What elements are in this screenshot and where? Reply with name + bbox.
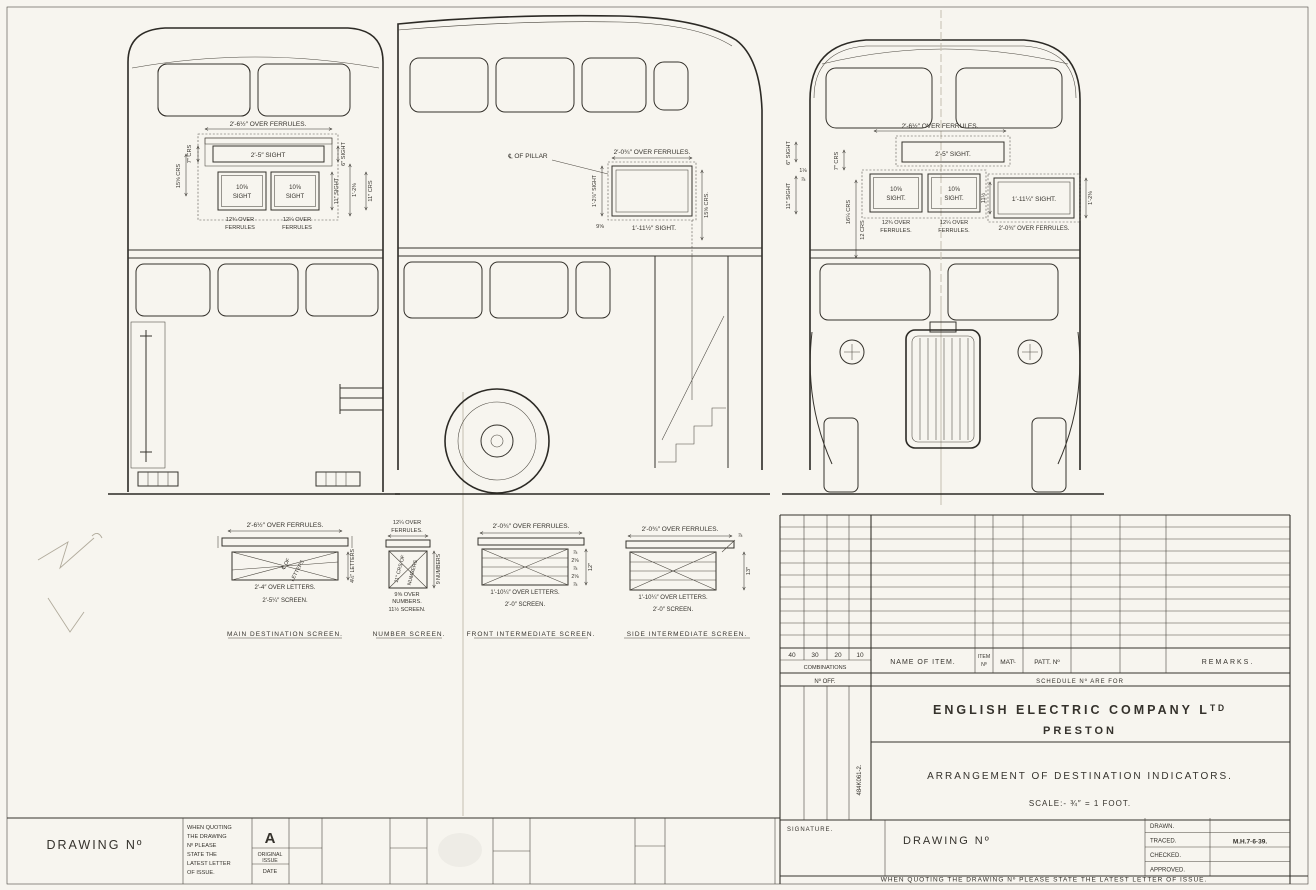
combo-col: 10	[856, 652, 864, 659]
side-lower-window	[404, 262, 482, 318]
drawing-scale: SCALE:- ¾″ = 1 FOOT.	[1029, 799, 1131, 808]
dim-label: 15⅝ CRS	[176, 164, 182, 189]
issue-note-line: OF ISSUE.	[187, 870, 215, 876]
drawing-no-left: DRAWING Nº	[46, 838, 143, 852]
dim-label: 15⅝ CRS.	[704, 192, 710, 218]
dim-label: 2⅝	[571, 558, 579, 564]
centerline-label: ℄ OF PILLAR	[507, 153, 548, 160]
dim-label: ⅞	[738, 533, 743, 539]
title-block: ENGLISH ELECTRIC COMPANY Lᵀᴰ PRESTON ARR…	[927, 703, 1233, 808]
front-lower-windscreen	[948, 264, 1058, 320]
combo-col: 40	[788, 652, 796, 659]
dim-label: 1′-10¼″ OVER LETTERS.	[490, 590, 560, 596]
dim-label: 6″ SIGHT	[786, 141, 792, 165]
bottom-strip: DRAWING Nº WHEN QUOTING THE DRAWING Nº P…	[7, 818, 1308, 884]
rear-lower-window	[218, 264, 298, 316]
item-no-header: Nº	[981, 662, 987, 668]
screen-details: 2′-6½″ OVER FERRULES. ℄ OF LETTERS 4½″ L…	[218, 520, 752, 638]
dim-label: FERRULES.	[391, 528, 423, 534]
dim-label: 1′-2⅜	[352, 183, 358, 197]
traced-label: TRACED.	[1150, 839, 1177, 845]
dim-label: 12 CRS	[860, 220, 866, 240]
dim-label: 12¾ OVER	[882, 220, 910, 226]
remarks-header: REMARKS.	[1202, 659, 1255, 666]
dim-label: 12¼ OVER	[283, 217, 311, 223]
dim-label: 7″ CRS	[834, 152, 840, 171]
dim-label: 4½″ LETTERS	[349, 549, 356, 583]
dim-label: 9 NUMBERS	[436, 553, 442, 584]
dim-label: SIGHT.	[944, 196, 964, 202]
dim-label: 2′-4″ OVER LETTERS.	[255, 585, 316, 591]
dim-label: 11″ CRS OF	[394, 555, 407, 584]
sheet-border	[7, 7, 1308, 884]
dim-label: 10⅝	[289, 185, 302, 191]
front-upper-windscreen	[956, 68, 1062, 128]
dim-label: FERRULES	[282, 225, 312, 231]
dim-label: 10⅝	[236, 185, 249, 191]
front-lower-windscreen	[820, 264, 930, 320]
side-lower-window	[490, 262, 568, 318]
dim-label: ⅞	[573, 582, 578, 588]
smudge	[438, 833, 482, 867]
side-lower-window	[576, 262, 610, 318]
side-upper-window	[496, 58, 574, 112]
dim-label: 2′-6½″ OVER FERRULES.	[247, 521, 324, 529]
original-issue-label: ISSUE	[262, 858, 278, 864]
dim-label: 2′-0″ SCREEN.	[653, 607, 694, 613]
date-label: DATE	[263, 869, 278, 875]
dim-label: FERRULES.	[880, 228, 912, 234]
side-upper-window	[582, 58, 646, 112]
name-of-item-header: NAME OF ITEM.	[890, 659, 956, 666]
dim-label: 6″ SIGHT	[341, 142, 347, 166]
rear-lower-window	[306, 264, 378, 316]
no-off-header: Nº OFF.	[814, 678, 836, 685]
main-destination-screen-detail: 2′-6½″ OVER FERRULES. ℄ OF LETTERS 4½″ L…	[218, 521, 356, 638]
item-no-header: ITEM	[978, 654, 990, 660]
dim-label: 1⅛	[799, 168, 807, 174]
dim-label: 2′-6½″ OVER FERRULES.	[230, 120, 307, 128]
checked-label: CHECKED.	[1150, 853, 1181, 859]
side-intermediate-screen-detail: 2′-0¾″ OVER FERRULES. ⅞ 13″ 1′-10¼″ OVER…	[624, 526, 752, 638]
dim-label: 16¼ CRS	[846, 200, 852, 225]
matl-header: MATᴸ	[1000, 659, 1016, 666]
combo-col: 30	[811, 652, 819, 659]
dim-label: 1′-2⅜	[1088, 191, 1094, 205]
dim-label: ⅞	[801, 177, 806, 183]
dim-label: 2′-5″ SIGHT	[251, 152, 286, 159]
dim-label: 13″	[746, 567, 752, 575]
dim-label: 11″ SIGHT	[786, 182, 792, 209]
combo-col: 20	[834, 652, 842, 659]
dim-label: 12″	[588, 563, 594, 571]
rear-elevation: 2′-6½″ OVER FERRULES. 2′-5″ SIGHT 7″ CRS…	[108, 28, 400, 494]
dim-label: 7″ CRS	[187, 145, 193, 164]
dim-label: 2′-0¾″ OVER FERRULES.	[999, 226, 1070, 232]
pencil-scribble	[38, 533, 102, 632]
dim-label: 11½ SCREEN.	[389, 606, 426, 613]
dim-label: 1′-2⅞″ SIGHT	[592, 174, 598, 207]
dim-label: 11″ CRS	[368, 180, 374, 201]
front-wheel	[1032, 418, 1066, 492]
dim-label: FERRULES	[225, 225, 255, 231]
dim-label: ⅞	[573, 566, 578, 572]
combinations-header: COMBINATIONS	[804, 665, 847, 671]
schedule-table: 40 30 20 10 COMBINATIONS Nº OFF. NAME OF…	[780, 515, 1290, 884]
schedule-for-note: SCHEDULE Nº ARE FOR	[1036, 678, 1124, 685]
dim-label: 9⅝ OVER	[394, 592, 419, 598]
dim-label: NUMBERS.	[392, 599, 422, 605]
front-wheel	[824, 418, 858, 492]
dim-label: FERRULES.	[938, 228, 970, 234]
company-name: ENGLISH ELECTRIC COMPANY Lᵀᴰ	[933, 703, 1227, 717]
approved-label: APPROVED.	[1150, 868, 1185, 874]
rear-lower-window	[136, 264, 210, 316]
screen-label: FRONT INTERMEDIATE SCREEN.	[467, 631, 596, 638]
dim-label: 2′-6½″ OVER FERRULES.	[902, 122, 979, 130]
front-intermediate-screen-detail: 2′-0¾″ OVER FERRULES. ⅞ 2⅝ ⅞ 2⅝ ⅞ 12″ 1′…	[467, 523, 596, 638]
issue-note-line: WHEN QUOTING	[187, 825, 232, 831]
signature-label: SIGNATURE.	[787, 827, 833, 833]
drawing-no-right: DRAWING Nº	[903, 835, 991, 847]
dim-label: 10⅝	[890, 187, 903, 193]
front-elevation: 2′-6½″ OVER FERRULES. 2′-5″ SIGHT. 6″ SI…	[782, 10, 1104, 494]
radiator-grille	[906, 330, 980, 448]
dim-label: 12¼ OVER	[393, 520, 421, 526]
dim-label: NUMBERS	[407, 559, 420, 586]
side-upper-window	[410, 58, 488, 112]
drawing-canvas: 2′-6½″ OVER FERRULES. 2′-5″ SIGHT 7″ CRS…	[0, 0, 1316, 890]
dim-label: SIGHT	[233, 194, 252, 200]
traced-value: M.H.7·6·39.	[1233, 839, 1268, 846]
patt-no-header: PATT. Nº	[1034, 659, 1060, 666]
drawing-title: ARRANGEMENT OF DESTINATION INDICATORS.	[927, 771, 1233, 782]
approval-block: DRAWN. TRACED. CHECKED. APPROVED. M.H.7·…	[1145, 818, 1290, 876]
side-elevation: 2′-0¾″ OVER FERRULES. ℄ OF PILLAR 1′-2⅞″…	[395, 16, 770, 494]
dim-label: 11″ SIGHT	[334, 177, 340, 204]
issue-note-line: LATEST LETTER	[187, 861, 231, 867]
screen-label: MAIN DESTINATION SCREEN.	[227, 631, 343, 638]
dim-label: 1′-11¼″ SIGHT.	[1012, 196, 1056, 203]
rear-upper-window	[158, 64, 250, 116]
issue-note-line: Nº PLEASE	[187, 842, 217, 849]
issue-note-line: STATE THE	[187, 852, 217, 858]
blueprint-sheet: 2′-6½″ OVER FERRULES. 2′-5″ SIGHT 7″ CRS…	[0, 0, 1316, 890]
dim-label: 10⅝	[948, 187, 961, 193]
dim-label: 9⅝	[596, 224, 604, 230]
screen-label: SIDE INTERMEDIATE SCREEN.	[627, 631, 748, 638]
dim-label: 2′-0¾″ OVER FERRULES.	[642, 526, 719, 533]
dim-label: 2⅝	[571, 574, 579, 580]
drawing-code-vertical: 484K061-2.	[857, 764, 863, 795]
dim-label: 1′-11½″ SIGHT.	[632, 224, 676, 232]
front-upper-windscreen	[826, 68, 932, 128]
company-city: PRESTON	[1043, 725, 1117, 737]
dim-label: ⅞	[573, 550, 578, 556]
dim-label: 2′-0¾″ OVER FERRULES.	[493, 523, 570, 530]
issue-note: WHEN QUOTING THE DRAWING Nº PLEASE STATE…	[187, 825, 232, 876]
dim-label: SIGHT	[286, 194, 305, 200]
side-upper-window	[654, 62, 688, 110]
issue-letter: A	[265, 830, 276, 847]
issue-note-line: THE DRAWING	[187, 834, 227, 840]
dim-label: 2′-0¾″ OVER FERRULES.	[614, 149, 691, 156]
dim-label: 1′-10¼″ OVER LETTERS.	[638, 595, 708, 601]
drawn-label: DRAWN.	[1150, 824, 1174, 830]
dim-label: 12¾ OVER	[226, 217, 254, 223]
dim-label: SIGHT.	[886, 196, 906, 202]
number-screen-detail: 12¼ OVER FERRULES. 11″ CRS OF NUMBERS 9 …	[373, 520, 446, 638]
dim-label: 2′-5¼″ SCREEN.	[262, 598, 308, 604]
screen-label: NUMBER SCREEN.	[373, 631, 446, 638]
footer-note: WHEN QUOTING THE DRAWING Nº PLEASE STATE…	[881, 877, 1208, 884]
dim-label: 12¼ OVER	[940, 220, 968, 226]
dim-label: 2′-5″ SIGHT.	[935, 151, 971, 158]
dim-label: 11½	[980, 192, 987, 203]
rear-upper-window	[258, 64, 350, 116]
dim-label: 2′-0″ SCREEN.	[505, 602, 546, 608]
